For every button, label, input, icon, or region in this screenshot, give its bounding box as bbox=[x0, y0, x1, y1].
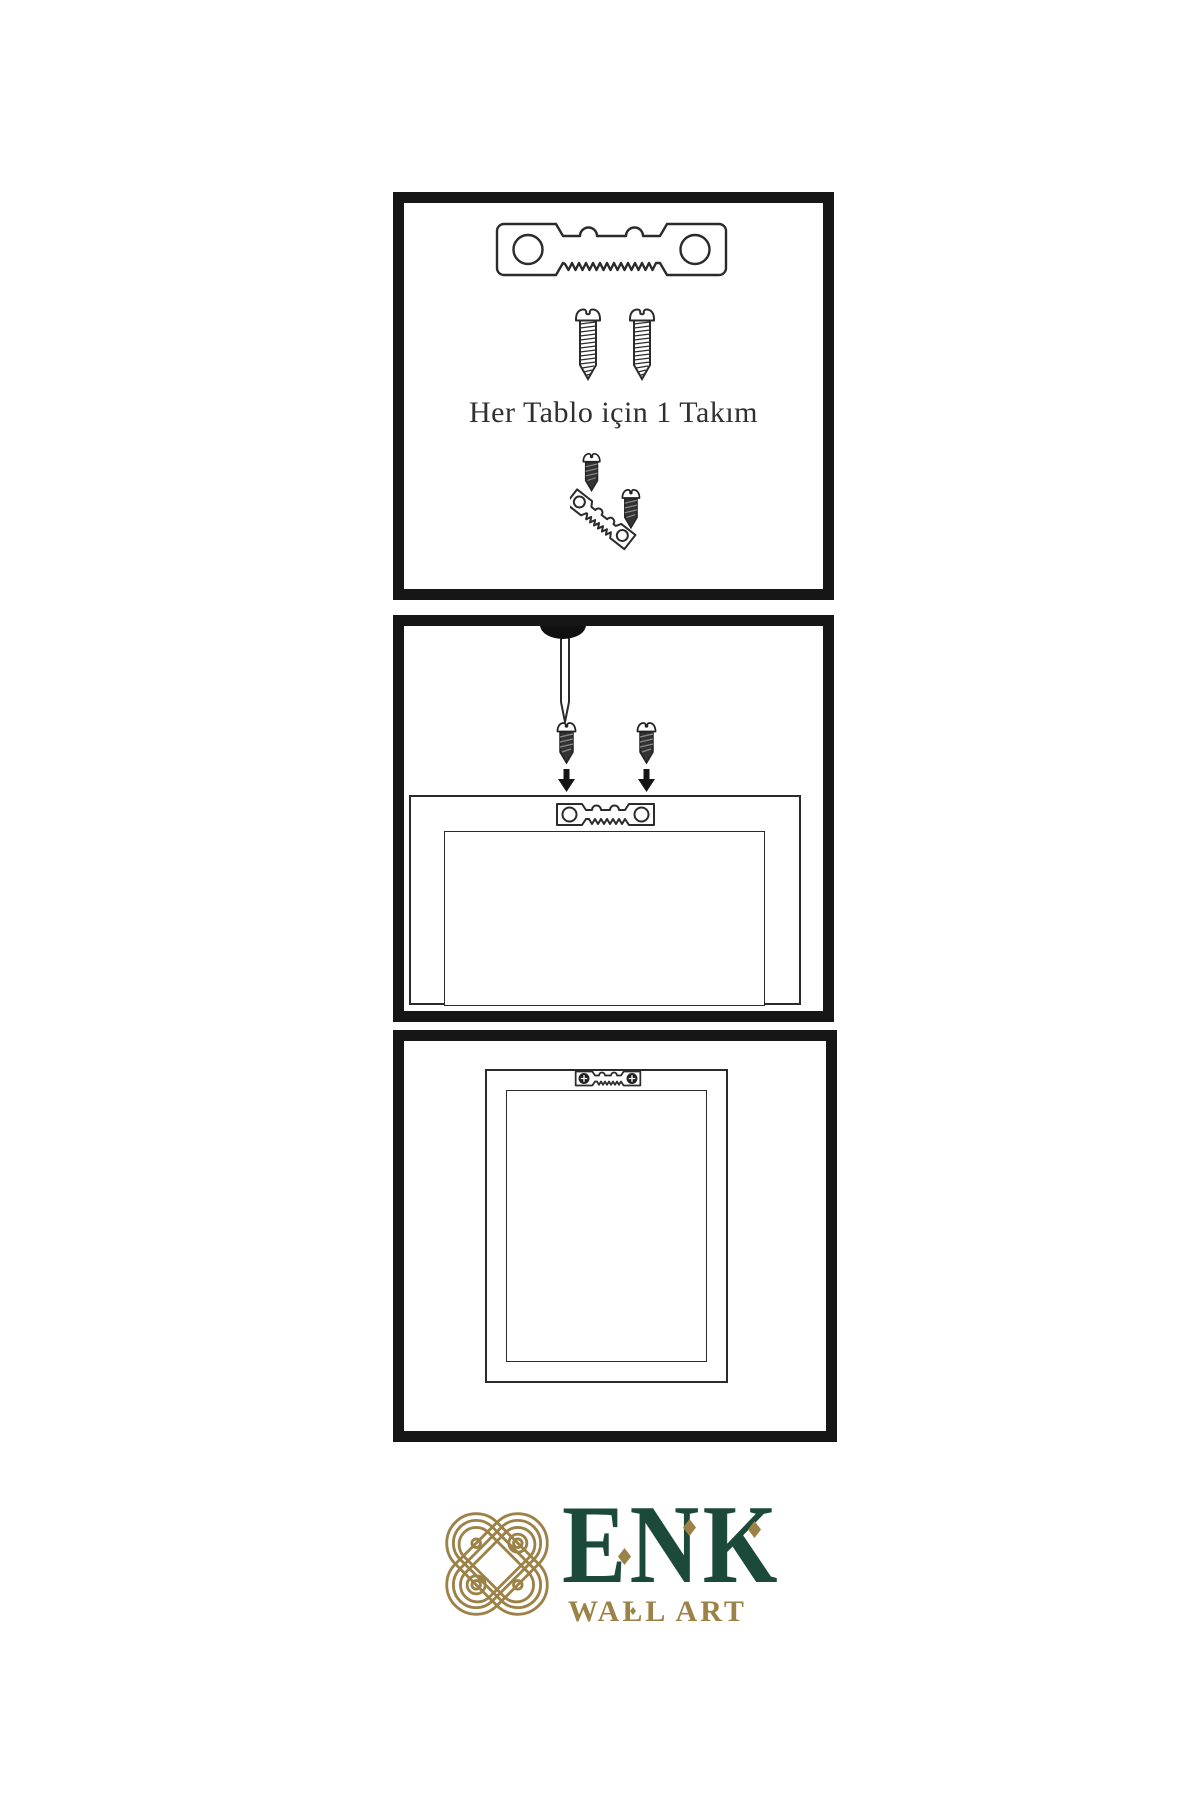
step-1-hardware-panel: Her Tablo için 1 Takım bbox=[393, 192, 834, 600]
screw-into-hanger-icon bbox=[570, 452, 662, 554]
dark-screw-icon bbox=[555, 721, 578, 765]
step-1-caption: Her Tablo için 1 Takım bbox=[404, 396, 823, 430]
nail-icon bbox=[557, 632, 573, 724]
screw-icon bbox=[627, 307, 657, 381]
sawtooth-hanger-icon bbox=[553, 802, 658, 827]
instruction-sheet: Her Tablo için 1 Takım bbox=[0, 0, 1200, 1800]
frame-back-panel bbox=[506, 1090, 707, 1362]
step-2-mounting-panel bbox=[393, 615, 834, 1022]
frame-back-panel bbox=[444, 831, 765, 1006]
step-3-hung-frame-panel bbox=[393, 1030, 837, 1442]
dark-screw-icon bbox=[583, 454, 600, 491]
brand-name: ENK bbox=[562, 1489, 781, 1601]
sawtooth-hanger-icon bbox=[493, 221, 730, 278]
brand-tagline: WALL ART bbox=[568, 1597, 747, 1627]
arrow-down-icon bbox=[638, 769, 655, 792]
mounted-hanger-icon bbox=[573, 1070, 643, 1087]
dark-screw-icon bbox=[622, 490, 639, 528]
nail-head-bump-icon bbox=[540, 625, 586, 639]
screw-icon bbox=[573, 307, 603, 381]
dark-screw-icon bbox=[635, 721, 658, 765]
knot-logo-icon bbox=[440, 1497, 554, 1631]
arrow-down-icon bbox=[558, 769, 575, 792]
